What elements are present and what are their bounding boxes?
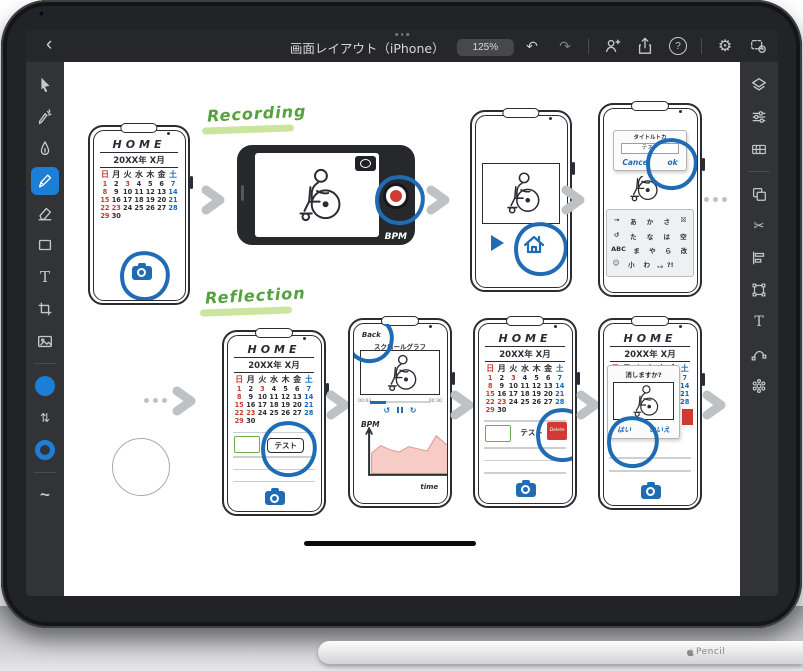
date-cell: 3: [123, 180, 133, 188]
swap-fill-stroke-button[interactable]: ⇅: [31, 404, 59, 432]
path-tools-button[interactable]: [745, 340, 773, 368]
date-cell: 9: [497, 382, 507, 390]
date-cell: 15: [485, 390, 495, 398]
annotation-circle: [257, 418, 320, 481]
date-cell: 13: [292, 393, 302, 401]
date-cell: [508, 406, 518, 414]
sketch-camera-button: [265, 491, 285, 505]
date-cell: 10: [123, 188, 133, 196]
date-cell: 3: [257, 385, 267, 393]
date-cell: 2: [246, 385, 256, 393]
sketch-notch: [120, 123, 157, 133]
weekday-row: 日月火水木金土: [485, 362, 565, 374]
date-cell: 5: [531, 374, 541, 382]
sketch-month-label: 20XX年 X月: [100, 153, 178, 168]
weekday-row: 日月火水木金土: [100, 168, 178, 180]
undo-button[interactable]: ↶: [522, 36, 542, 56]
shape-tool[interactable]: [31, 231, 59, 259]
sketch-video-thumbnail: [482, 163, 560, 223]
fill-swatch-icon: [35, 376, 55, 396]
date-cell: 3: [508, 374, 518, 382]
week-row: 15161718192021: [485, 390, 565, 398]
smoothing-tool[interactable]: ~: [31, 481, 59, 509]
date-cell: 19: [531, 390, 541, 398]
date-cell: 11: [520, 382, 530, 390]
date-cell: 18: [520, 390, 530, 398]
pen-tool[interactable]: [31, 135, 59, 163]
sketch-phone-home-entry: HOME20XX年 X月日月火水木金土123456789101112131415…: [222, 330, 326, 516]
date-cell: 27: [157, 204, 167, 212]
sketch-key: か: [645, 216, 655, 226]
flow-arrow: [172, 386, 198, 416]
date-cell: 9: [246, 393, 256, 401]
date-cell: 19: [280, 401, 290, 409]
weekday-label: 土: [168, 169, 178, 180]
layers-panel-button[interactable]: [745, 71, 773, 99]
date-cell: [168, 212, 178, 220]
date-cell: 11: [269, 393, 279, 401]
zoom-level-button[interactable]: 125%: [457, 39, 515, 56]
reflection-flow-label: Reflection: [205, 283, 307, 307]
divider: [701, 38, 702, 54]
date-cell: 14: [555, 382, 565, 390]
date-cell: 30: [246, 417, 256, 425]
dialog-message: 消しますか?: [608, 366, 679, 379]
date-cell: 7: [680, 374, 690, 382]
crop-tool[interactable]: [31, 295, 59, 323]
date-cell: 21: [304, 401, 314, 409]
sliders-icon: [750, 108, 768, 126]
sketch-notch: [631, 101, 669, 111]
date-cell: 20: [543, 390, 553, 398]
sketch-camera-dot: [679, 325, 682, 328]
date-cell: 6: [292, 385, 302, 393]
date-cell: 1: [234, 385, 244, 393]
keyboard-row: →あかさ☒: [608, 216, 691, 226]
sketch-side-button: [190, 176, 193, 189]
recording-underline: [202, 124, 294, 134]
keyboard-row: ☺小わ、。?!: [608, 259, 691, 269]
share-icon: [636, 37, 654, 55]
date-cell: [157, 212, 167, 220]
sketch-input-box: [234, 436, 260, 453]
date-cell: 30: [111, 212, 121, 220]
sketch-bpm-chart: [359, 427, 447, 482]
scissors-button[interactable]: ✂: [745, 212, 773, 240]
sketch-month-label: 20XX年 X月: [485, 347, 565, 362]
sketch-phone-graph: Back スクロールグラフ 00:03 00:30 ↺ ↻: [348, 318, 452, 508]
weekday-label: 金: [543, 363, 553, 374]
sketch-camera-dot: [679, 110, 682, 113]
date-cell: 17: [257, 401, 267, 409]
type-options-button[interactable]: T: [745, 308, 773, 336]
week-row: 22232425262728: [234, 409, 314, 417]
forward-icon: ↻: [410, 406, 417, 415]
pencil-label: Pencil: [696, 647, 725, 657]
sketch-home-title: HOME: [610, 332, 690, 347]
weekday-label: 日: [234, 374, 244, 385]
eraser-tool[interactable]: [31, 199, 59, 227]
sketch-list-line: [609, 470, 691, 472]
right-toolbar: ✂ T: [740, 62, 778, 596]
sketch-key: ABC: [611, 245, 626, 255]
sketch-xlabel: time: [420, 483, 438, 491]
date-cell: 25: [520, 398, 530, 406]
date-cell: 21: [555, 390, 565, 398]
sketch-key: ら: [663, 245, 673, 255]
date-cell: 26: [280, 409, 290, 417]
week-row: 15161718192021: [100, 196, 178, 204]
date-cell: 5: [145, 180, 155, 188]
date-cell: 13: [543, 382, 553, 390]
date-cell: 21: [680, 390, 690, 398]
pencil-icon: [36, 172, 54, 190]
properties-panel-button[interactable]: [745, 103, 773, 131]
week-row: 891011121314: [234, 393, 314, 401]
date-cell: 7: [168, 180, 178, 188]
date-cell: 22: [234, 409, 244, 417]
sketch-camera-dot: [303, 337, 306, 340]
sketch-screen: Back スクロールグラフ 00:03 00:30 ↺ ↻: [353, 323, 448, 504]
sketch-notch: [631, 316, 669, 326]
date-cell: 24: [508, 398, 518, 406]
align-button[interactable]: [745, 244, 773, 272]
date-cell: 2: [111, 180, 121, 188]
sketch-phone-save-dialog: タイトルトカ テスト Cancel ok →あかさ☒↺たなは空ABCまやら改☺小…: [598, 103, 702, 297]
date-cell: 12: [280, 393, 290, 401]
date-cell: 13: [157, 188, 167, 196]
date-cell: 27: [543, 398, 553, 406]
sketch-calendar: HOME20XX年 X月日月火水木金土123456789101112131415…: [100, 138, 178, 220]
weekday-label: 月: [497, 363, 507, 374]
sketch-key: →: [612, 216, 622, 226]
sketch-key: ま: [632, 245, 642, 255]
date-cell: 25: [269, 409, 279, 417]
flow-arrow: [702, 390, 728, 420]
date-cell: 23: [497, 398, 507, 406]
wheelchair-sketch: [377, 353, 423, 393]
date-cell: [304, 417, 314, 425]
date-cell: 27: [292, 409, 302, 417]
date-cell: 10: [257, 393, 267, 401]
date-cell: 20: [292, 401, 302, 409]
sketch-camera-dot: [429, 325, 432, 328]
sketch-phone-delete: HOME20XX年 X月日月火水木金土123456789101112131415…: [473, 318, 577, 508]
date-cell: 7: [304, 385, 314, 393]
keyboard-row: ABCまやら改: [608, 245, 691, 255]
text-tool[interactable]: T: [31, 263, 59, 291]
sketch-bpm-label: BPM: [385, 232, 407, 242]
date-cell: [145, 212, 155, 220]
apple-logo-icon: [686, 648, 694, 657]
sketch-home-title: HOME: [234, 343, 314, 358]
pen-nib-icon: [36, 140, 54, 158]
week-row: 2930: [100, 212, 178, 220]
sketch-key: 改: [679, 245, 689, 255]
sketch-phone-review: [470, 110, 572, 292]
date-cell: 29: [100, 212, 110, 220]
annotation-circle: [510, 218, 567, 279]
flow-arrow: [201, 185, 227, 215]
document-title: 画面レイアウト（iPhone）: [290, 38, 445, 57]
sketch-key: 小: [626, 259, 636, 269]
wheelchair-sketch: [495, 170, 547, 216]
sketch-camera-button: [641, 485, 661, 499]
date-cell: 30: [497, 406, 507, 414]
select-tool[interactable]: [31, 71, 59, 99]
fill-color-swatch[interactable]: [31, 372, 59, 400]
date-cell: 14: [680, 382, 690, 390]
weekday-label: 金: [292, 374, 302, 385]
sketch-camera-dot: [549, 117, 552, 120]
date-cell: 6: [543, 374, 553, 382]
date-cell: 15: [234, 401, 244, 409]
drawing-canvas[interactable]: Recording Reflection HOME20XX年 X月日月火水木金土…: [64, 62, 740, 596]
date-cell: 1: [485, 374, 495, 382]
back-button[interactable]: ‹: [40, 34, 58, 56]
date-cell: 20: [157, 196, 167, 204]
weekday-row: 日月火水木金土: [234, 373, 314, 385]
week-row: 22232425262728: [485, 398, 565, 406]
cursor-icon: [36, 76, 54, 94]
combine-icon: [750, 185, 768, 203]
sketch-list-line: [484, 472, 566, 474]
sketch-side-button: [702, 158, 705, 171]
weekday-label: 木: [280, 374, 290, 385]
date-cell: 24: [257, 409, 267, 417]
sketch-home-title: HOME: [100, 138, 178, 153]
date-cell: 1: [100, 180, 110, 188]
scene: ‹ 画面レイアウト（iPhone） 125% ↶ ↷: [0, 0, 803, 671]
date-cell: 17: [508, 390, 518, 398]
weekday-label: 火: [508, 363, 518, 374]
date-cell: 7: [555, 374, 565, 382]
sketch-side-button: [577, 372, 580, 385]
annotation-circle: [372, 172, 428, 228]
date-cell: 14: [304, 393, 314, 401]
weekday-label: 水: [269, 374, 279, 385]
week-row: 891011121314: [100, 188, 178, 196]
sketch-home-title: HOME: [485, 332, 565, 347]
weekday-label: 日: [100, 169, 110, 180]
sketch-list-line: [233, 481, 315, 483]
sketch-flip-camera-button: [355, 156, 376, 171]
date-cell: 29: [234, 417, 244, 425]
divider: [34, 472, 56, 473]
sketch-month-label: 20XX年 X月: [234, 358, 314, 373]
pause-icon: [397, 407, 403, 413]
home-indicator[interactable]: [304, 541, 476, 546]
date-cell: 16: [497, 390, 507, 398]
sketch-key: ☺: [611, 259, 621, 269]
sketch-key: [679, 259, 689, 269]
place-image-tool[interactable]: [31, 327, 59, 355]
date-cell: 26: [145, 204, 155, 212]
date-cell: 23: [246, 409, 256, 417]
date-cell: 18: [269, 401, 279, 409]
weekday-label: 金: [157, 169, 167, 180]
weekday-label: 火: [257, 374, 267, 385]
redo-button[interactable]: ↷: [555, 36, 575, 56]
sketch-key: ↺: [612, 231, 622, 241]
multitasking-indicator[interactable]: [395, 33, 409, 36]
date-cell: 5: [280, 385, 290, 393]
date-cell: [257, 417, 267, 425]
rewind-icon: ↺: [384, 406, 391, 415]
sketch-delete-button-peek: [682, 409, 693, 425]
weekday-label: 水: [134, 169, 144, 180]
weekday-label: 火: [123, 169, 133, 180]
weekday-label: 木: [531, 363, 541, 374]
date-cell: 28: [555, 398, 565, 406]
date-cell: 9: [111, 188, 121, 196]
divider: [748, 171, 770, 172]
direct-select-tool[interactable]: [31, 103, 59, 131]
sketch-playback-controls: ↺ ↻: [354, 406, 447, 415]
rectangle-icon: [36, 236, 54, 254]
week-row: 22232425262728: [100, 204, 178, 212]
date-cell: 10: [508, 382, 518, 390]
ipad-device: ‹ 画面レイアウト（iPhone） 125% ↶ ↷: [1, 0, 802, 628]
sketch-play-button: [491, 235, 504, 251]
week-row: 891011121314: [485, 382, 565, 390]
date-cell: 17: [123, 196, 133, 204]
transform-button[interactable]: [745, 276, 773, 304]
sketch-notch: [506, 316, 544, 326]
help-icon: ?: [669, 37, 687, 55]
sketch-calendar: HOME20XX年 X月日月火水木金土123456789101112131415…: [485, 332, 565, 414]
sketch-notch: [255, 328, 293, 338]
front-camera: [38, 10, 45, 17]
date-cell: 2: [497, 374, 507, 382]
weekday-label: 月: [246, 374, 256, 385]
sketch-screen: HOME20XX年 X月日月火水木金土123456789101112131415…: [93, 130, 186, 301]
date-cell: 25: [134, 204, 144, 212]
week-row: 1234567: [234, 385, 314, 393]
date-cell: 12: [145, 188, 155, 196]
sketch-camera-button: [516, 483, 536, 497]
weekday-label: 水: [520, 363, 530, 374]
align-icon: [750, 249, 768, 267]
apple-pencil: Pencil: [318, 641, 803, 664]
sketch-key: さ: [662, 216, 672, 226]
date-cell: 22: [485, 398, 495, 406]
sketch-progress-bar: [370, 401, 430, 403]
sketch-side-button: [572, 162, 575, 175]
sketch-empty-circle: [112, 438, 170, 496]
weekday-label: 日: [485, 363, 495, 374]
pencil-tool[interactable]: [31, 167, 59, 195]
crop-icon: [36, 300, 54, 318]
titlebar: ‹ 画面レイアウト（iPhone） 125% ↶ ↷: [26, 30, 778, 62]
repeat-pattern-icon: [750, 377, 768, 395]
date-cell: 21: [168, 196, 178, 204]
sketch-time-total: 00:30: [429, 399, 442, 404]
version-history-button[interactable]: [748, 36, 768, 56]
wheelchair-sketch: [284, 166, 350, 224]
date-cell: 26: [531, 398, 541, 406]
sketch-input-box: [485, 425, 511, 442]
settings-button[interactable]: ⚙: [715, 36, 735, 56]
weekday-label: 土: [304, 374, 314, 385]
recording-flow-label: Recording: [207, 101, 307, 125]
date-cell: 29: [485, 406, 495, 414]
share-button[interactable]: [635, 36, 655, 56]
weekday-label: 月: [111, 169, 121, 180]
divider: [588, 38, 589, 54]
date-cell: 6: [157, 180, 167, 188]
date-cell: 16: [111, 196, 121, 204]
sketch-back-button: Back: [362, 331, 381, 339]
sketch-screen: HOME20XX年 X月日月火水木金土123456789101112131415…: [227, 335, 322, 512]
sketch-viewfinder: [255, 153, 379, 237]
grids-panel-button[interactable]: [745, 135, 773, 163]
sketch-key: た: [628, 231, 638, 241]
sketch-video-thumbnail: [613, 382, 674, 420]
grid-icon: [750, 140, 768, 158]
sketch-key: 、。?!: [657, 259, 674, 269]
combine-button[interactable]: [745, 180, 773, 208]
sketch-month-label: 20XX年 X月: [610, 347, 690, 362]
date-cell: 28: [304, 409, 314, 417]
week-row: 1234567: [100, 180, 178, 188]
curve-icon: [750, 345, 768, 363]
sketch-key: は: [662, 231, 672, 241]
left-toolbar: T ⇅ ~: [26, 62, 64, 596]
date-cell: 8: [234, 393, 244, 401]
date-cell: 15: [100, 196, 110, 204]
image-icon: [36, 332, 54, 350]
date-cell: [520, 406, 530, 414]
date-cell: 4: [134, 180, 144, 188]
date-cell: 8: [100, 188, 110, 196]
weekday-label: 土: [680, 363, 690, 374]
date-cell: 14: [168, 188, 178, 196]
weekday-label: 木: [145, 169, 155, 180]
history-select-icon: [749, 37, 767, 55]
sketch-key: わ: [642, 259, 652, 269]
flow-ellipsis: [144, 398, 167, 403]
sketch-key: や: [647, 245, 657, 255]
repeat-button[interactable]: [745, 372, 773, 400]
invite-people-button[interactable]: [602, 36, 622, 56]
sketch-side-button: [452, 372, 455, 385]
flow-ellipsis: [704, 197, 727, 202]
divider: [34, 363, 56, 364]
sketch-key: ☒: [678, 216, 688, 226]
sketch-key: あ: [628, 216, 638, 226]
date-cell: 12: [531, 382, 541, 390]
annotation-circle: [116, 247, 172, 300]
layers-icon: [750, 76, 768, 94]
help-button[interactable]: ?: [668, 36, 688, 56]
flow-arrow: [426, 185, 452, 215]
touch-sparkle-icon: [36, 108, 54, 126]
sketch-phone-home-1: HOME20XX年 X月日月火水木金土123456789101112131415…: [88, 125, 190, 305]
sketch-side-button: [702, 373, 705, 386]
date-cell: 4: [520, 374, 530, 382]
sketch-notch: [502, 108, 539, 118]
stroke-color-swatch[interactable]: [31, 436, 59, 464]
date-cell: 22: [100, 204, 110, 212]
date-cell: [123, 212, 133, 220]
app-window: ‹ 画面レイアウト（iPhone） 125% ↶ ↷: [26, 30, 778, 596]
date-cell: [134, 212, 144, 220]
sketch-record-button: [375, 175, 417, 217]
eraser-icon: [36, 204, 54, 222]
sketch-time-current: 00:03: [358, 399, 371, 404]
sketch-screen: [475, 115, 568, 288]
